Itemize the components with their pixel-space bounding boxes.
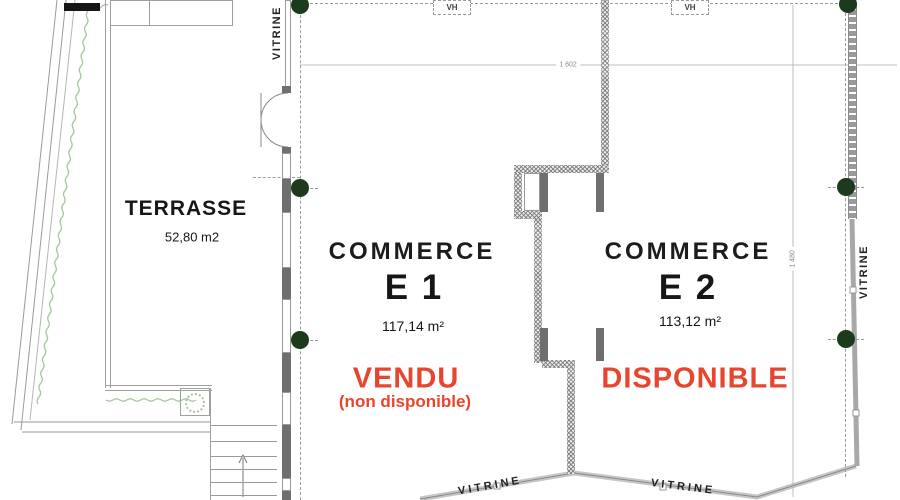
staircase bbox=[211, 425, 277, 500]
vh-label: VH bbox=[684, 3, 695, 12]
stair-tread bbox=[211, 456, 277, 457]
e2-title: COMMERCE bbox=[605, 238, 772, 266]
divider-wall bbox=[601, 0, 609, 168]
e2-unit: E 2 bbox=[659, 268, 718, 308]
column-marker bbox=[837, 330, 855, 348]
floor-plan: VH VH TERRASSE 52,80 m2 COMMERCE E 1 117… bbox=[0, 0, 900, 500]
stair-tread bbox=[211, 482, 277, 483]
divider-wall bbox=[514, 211, 542, 219]
e1-status: VENDU bbox=[353, 363, 460, 396]
vh-box: VH bbox=[671, 0, 709, 15]
grid-line-top bbox=[300, 3, 848, 4]
dimension-height: 1 480 bbox=[790, 247, 797, 271]
wall-pier bbox=[282, 353, 291, 392]
e1-title: COMMERCE bbox=[329, 238, 496, 266]
column-marker bbox=[837, 178, 855, 196]
wall-segment bbox=[64, 3, 100, 11]
dimension-width: 1 602 bbox=[556, 62, 580, 69]
window bbox=[282, 299, 291, 353]
wall-pier bbox=[282, 268, 291, 299]
wall-pier bbox=[540, 328, 548, 361]
duct-shaft bbox=[524, 173, 540, 211]
stair-tread bbox=[211, 441, 277, 442]
vh-label: VH bbox=[446, 3, 457, 12]
divider-wall bbox=[567, 368, 575, 474]
e2-area: 113,12 m² bbox=[659, 313, 721, 329]
wall-pier bbox=[282, 179, 291, 212]
corner-planter bbox=[180, 388, 210, 416]
divider-wall bbox=[542, 360, 575, 368]
planter-box bbox=[110, 0, 233, 26]
e1-area: 117,14 m² bbox=[382, 318, 444, 334]
grid-line-right bbox=[845, 3, 846, 477]
vitrine-label-northwest: VITRINE bbox=[271, 6, 283, 60]
column-marker bbox=[291, 179, 309, 197]
grid-line-left bbox=[300, 0, 301, 500]
stair-tread bbox=[211, 469, 277, 470]
window bbox=[282, 212, 291, 268]
west-vitrine-band bbox=[285, 0, 291, 90]
wall-pier bbox=[596, 173, 604, 212]
door-jamb bbox=[282, 86, 291, 93]
hedge-line bbox=[37, 11, 88, 404]
e1-unit: E 1 bbox=[385, 268, 444, 308]
wall-pier bbox=[540, 173, 548, 212]
window bbox=[282, 153, 291, 179]
vitrine-label-east: VITRINE bbox=[858, 245, 870, 299]
window bbox=[282, 478, 291, 491]
vh-box: VH bbox=[433, 0, 471, 15]
wall-pier bbox=[596, 328, 604, 361]
wall-pier bbox=[282, 491, 291, 500]
plant-icon bbox=[185, 393, 205, 413]
divider-wall bbox=[514, 165, 609, 173]
planter-divider bbox=[149, 0, 150, 26]
stair-tread bbox=[211, 495, 277, 496]
grid-tick bbox=[253, 177, 300, 178]
e1-status-note: (non disponible) bbox=[339, 392, 471, 412]
e2-status: DISPONIBLE bbox=[601, 363, 788, 396]
double-door-icon bbox=[261, 93, 288, 147]
window bbox=[282, 392, 291, 425]
terrace-title: TERRASSE bbox=[125, 197, 247, 221]
wall-pier bbox=[282, 425, 291, 478]
column-marker bbox=[291, 331, 309, 349]
terrace-area: 52,80 m2 bbox=[165, 230, 219, 245]
terrace-west-wall bbox=[105, 0, 111, 388]
